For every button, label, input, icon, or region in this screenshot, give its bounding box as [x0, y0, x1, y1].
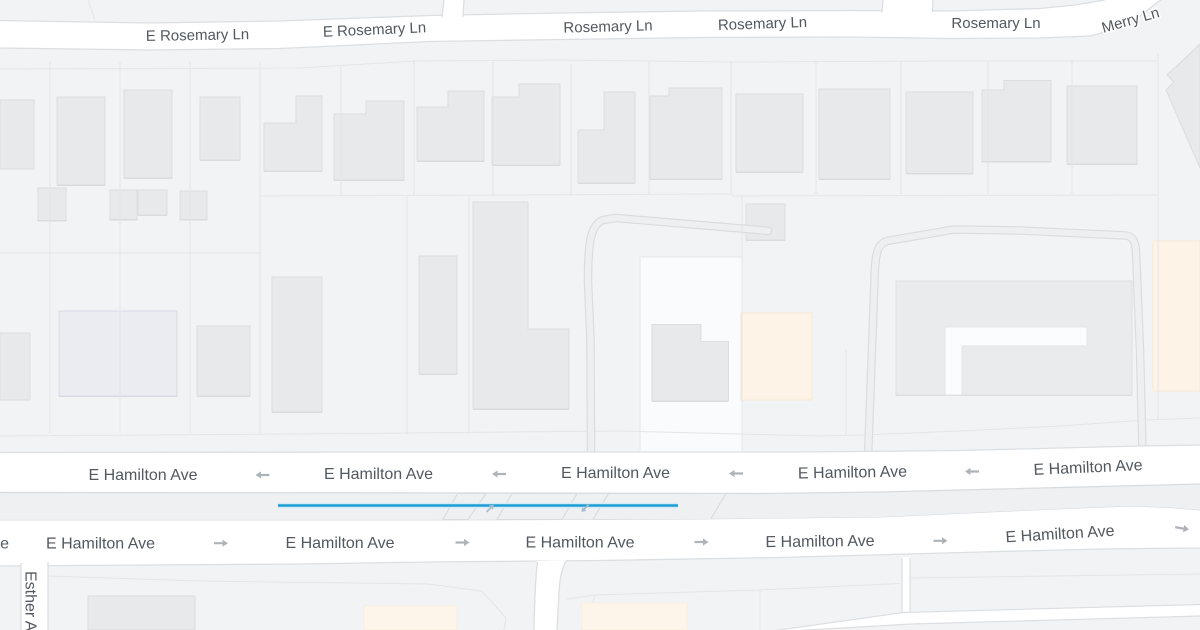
- svg-text:E Hamilton Ave: E Hamilton Ave: [324, 466, 433, 483]
- svg-text:Rosemary Ln: Rosemary Ln: [718, 14, 808, 34]
- svg-text:E Hamilton Ave: E Hamilton Ave: [88, 467, 197, 484]
- svg-text:E Hamilton Ave: E Hamilton Ave: [765, 533, 874, 551]
- svg-text:E Hamilton Ave: E Hamilton Ave: [285, 535, 394, 552]
- svg-text:E Hamilton Ave: E Hamilton Ave: [0, 536, 9, 553]
- svg-text:Rosemary Ln: Rosemary Ln: [951, 15, 1040, 32]
- svg-text:E Rosemary Ln: E Rosemary Ln: [146, 26, 250, 45]
- svg-text:E Hamilton Ave: E Hamilton Ave: [798, 464, 907, 483]
- svg-text:E Hamilton Ave: E Hamilton Ave: [525, 535, 634, 552]
- svg-text:E Hamilton Ave: E Hamilton Ave: [561, 465, 670, 482]
- svg-text:Esther Ave: Esther Ave: [22, 571, 39, 630]
- svg-text:Rosemary Ln: Rosemary Ln: [563, 17, 653, 36]
- svg-text:E Hamilton Ave: E Hamilton Ave: [46, 536, 155, 553]
